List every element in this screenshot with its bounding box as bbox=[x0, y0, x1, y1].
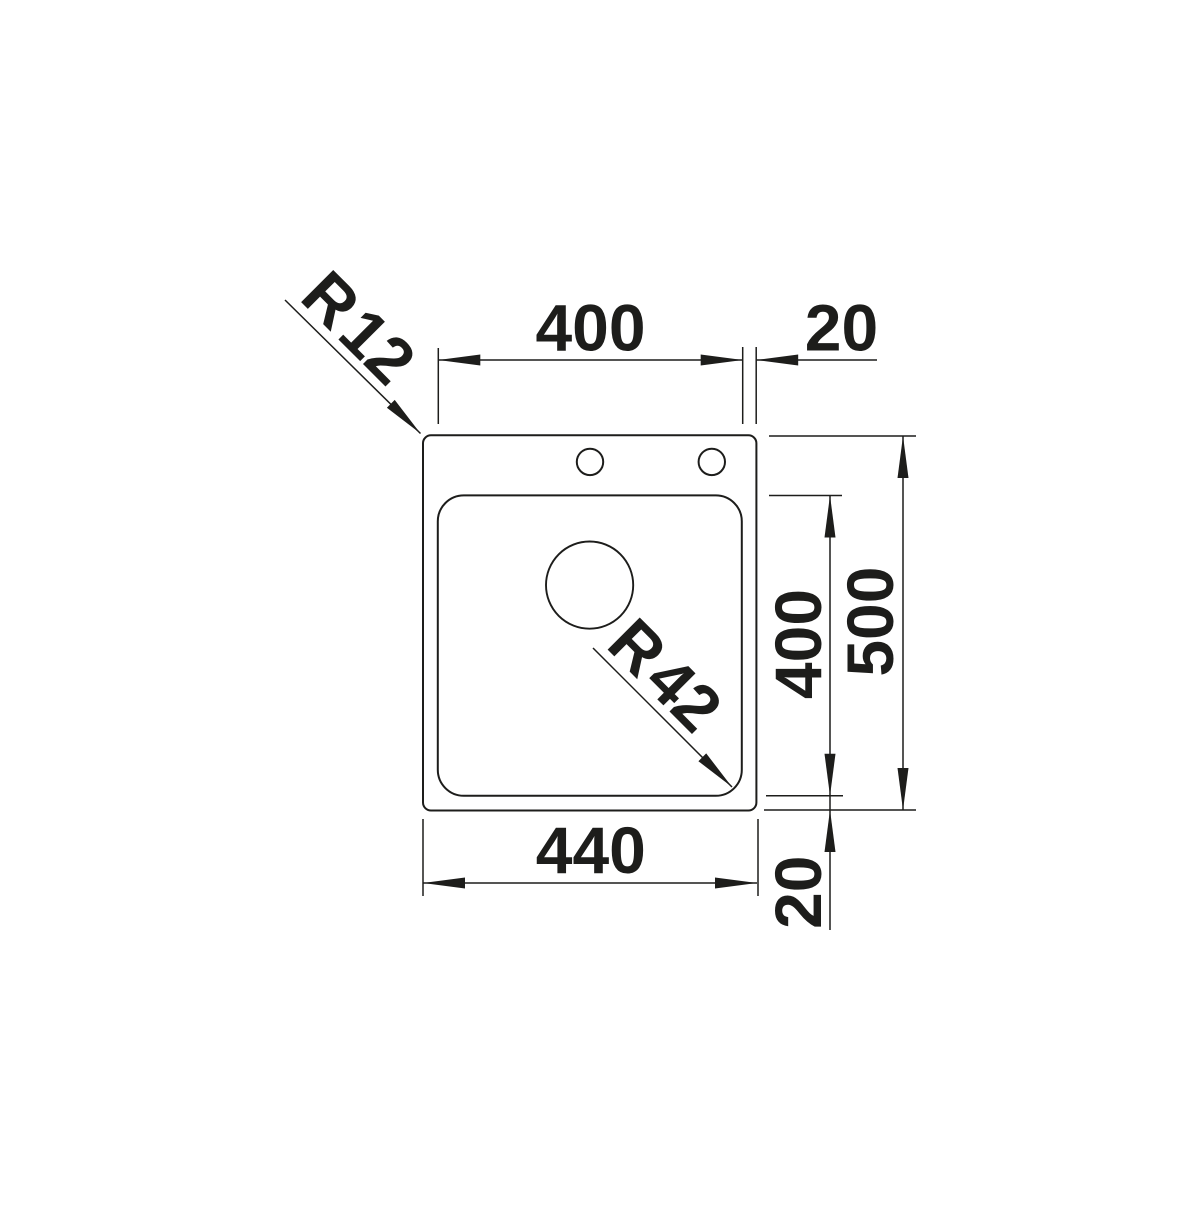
svg-text:400: 400 bbox=[761, 589, 835, 699]
svg-text:20: 20 bbox=[805, 291, 878, 365]
svg-text:20: 20 bbox=[761, 855, 835, 928]
svg-text:440: 440 bbox=[536, 813, 646, 887]
svg-text:400: 400 bbox=[535, 291, 645, 365]
svg-text:500: 500 bbox=[833, 567, 907, 677]
